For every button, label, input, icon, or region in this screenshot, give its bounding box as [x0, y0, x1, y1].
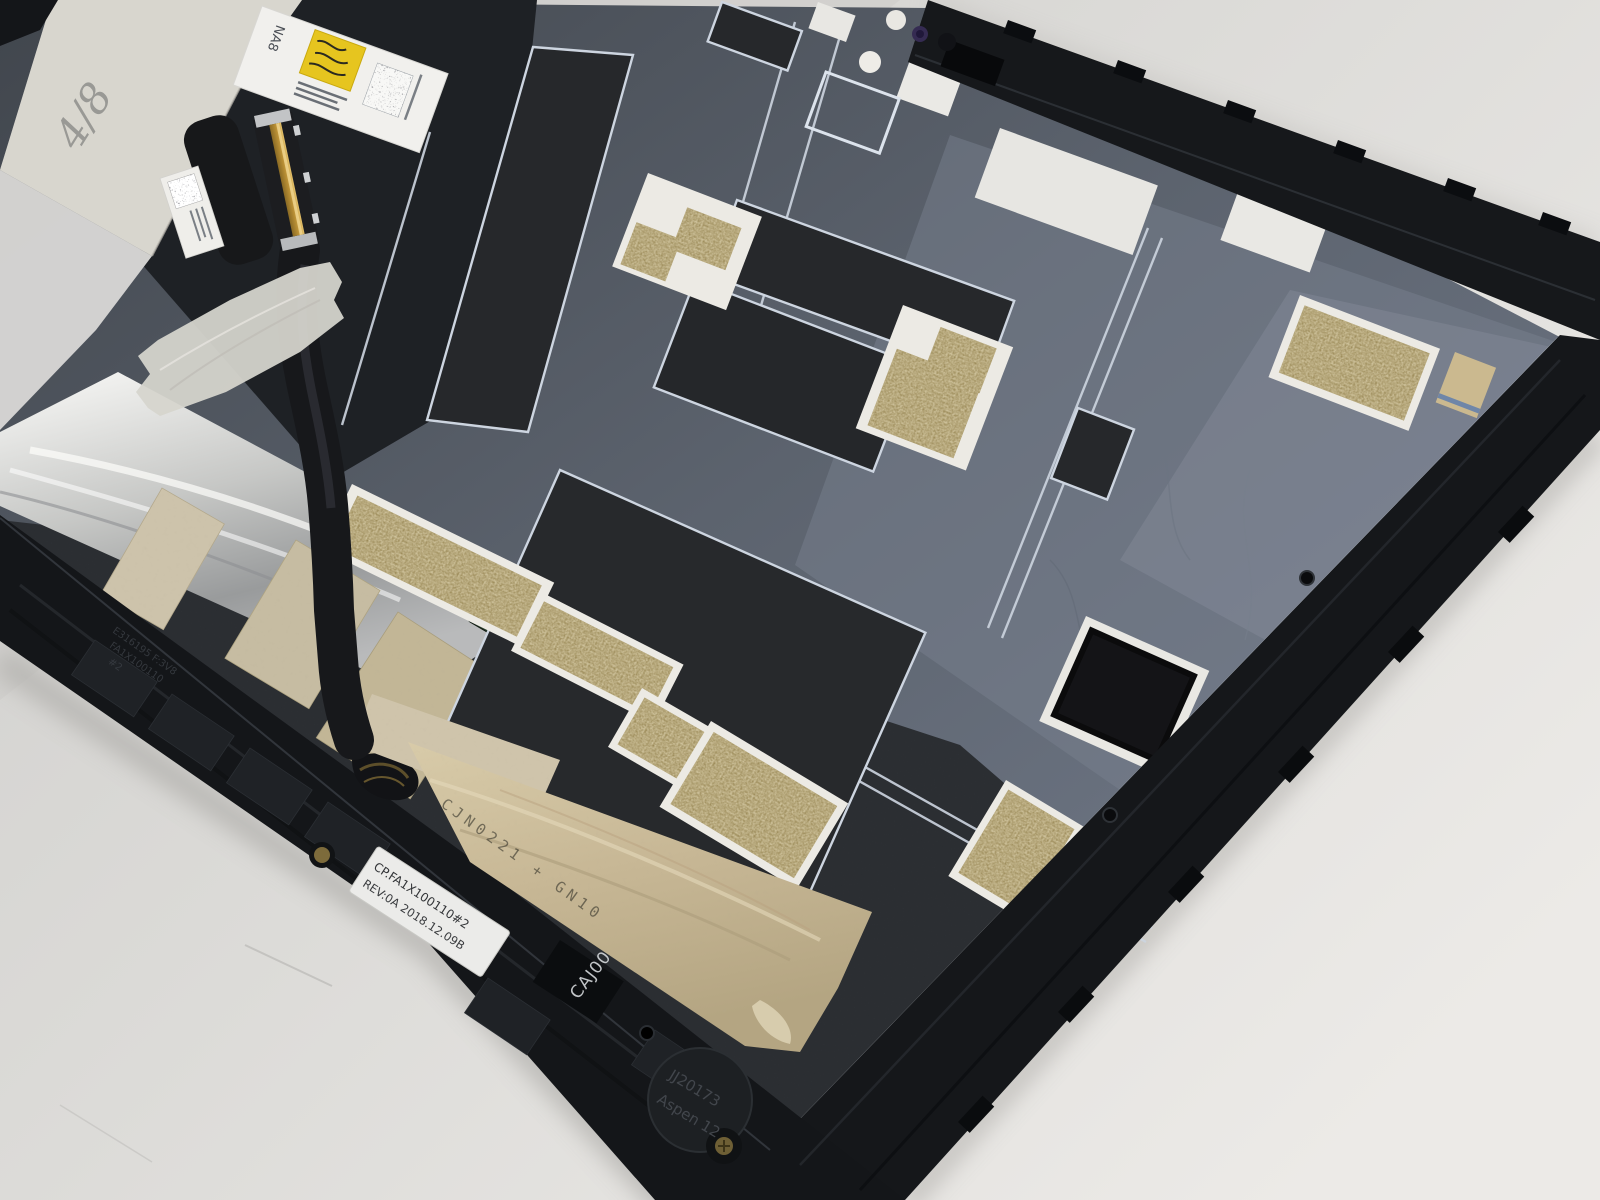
camera-hole: [859, 51, 881, 73]
camera-lens-core: [916, 30, 924, 38]
photo-canvas: CAJ00 JJ20173 Aspen 12 E316195 F:3V8 FA1…: [0, 0, 1600, 1200]
photo-stage: CAJ00 JJ20173 Aspen 12 E316195 F:3V8 FA1…: [0, 0, 1600, 1200]
screw-hole: [640, 1026, 654, 1040]
frame-hole: [886, 10, 906, 30]
screw-hole: [1103, 808, 1117, 822]
brass-screw: [314, 847, 330, 863]
frame-hole-dark: [938, 33, 956, 51]
screw-hole: [1300, 571, 1314, 585]
